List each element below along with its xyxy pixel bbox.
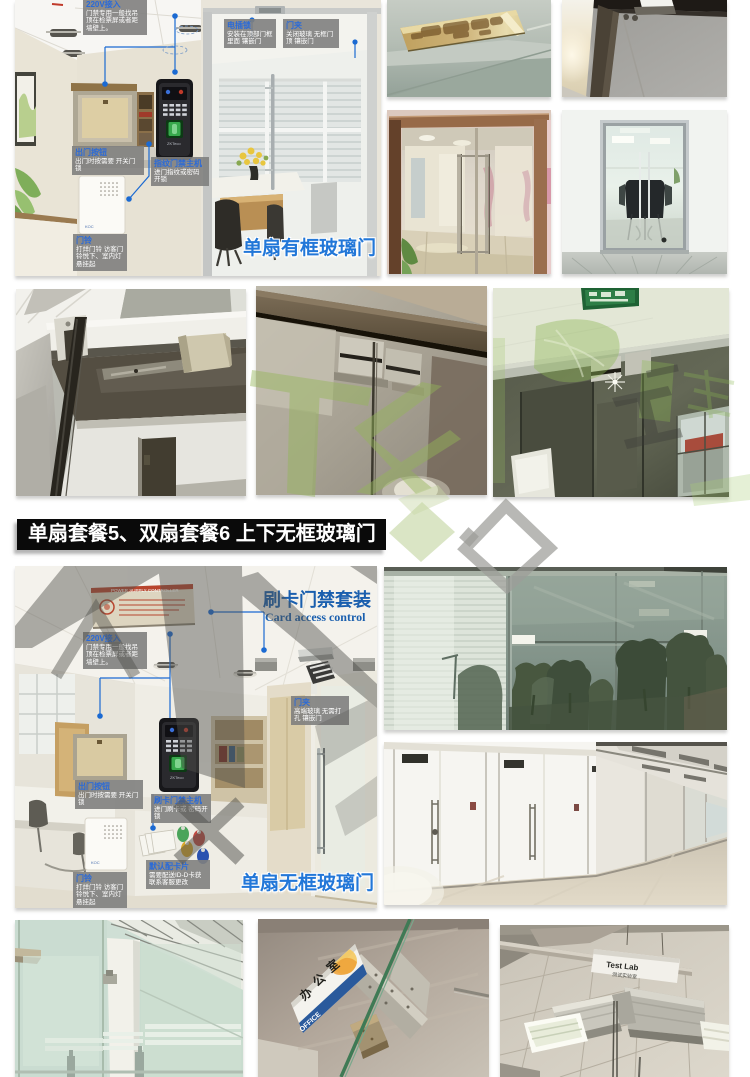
- svg-text:KOC: KOC: [91, 860, 100, 865]
- svg-text:ZKTeco: ZKTeco: [170, 775, 184, 780]
- svg-text:ZKTeco: ZKTeco: [167, 141, 181, 146]
- svg-text:POWER SUPPLY CONTROLLER: POWER SUPPLY CONTROLLER: [111, 588, 179, 593]
- svg-text:KOC: KOC: [85, 224, 94, 229]
